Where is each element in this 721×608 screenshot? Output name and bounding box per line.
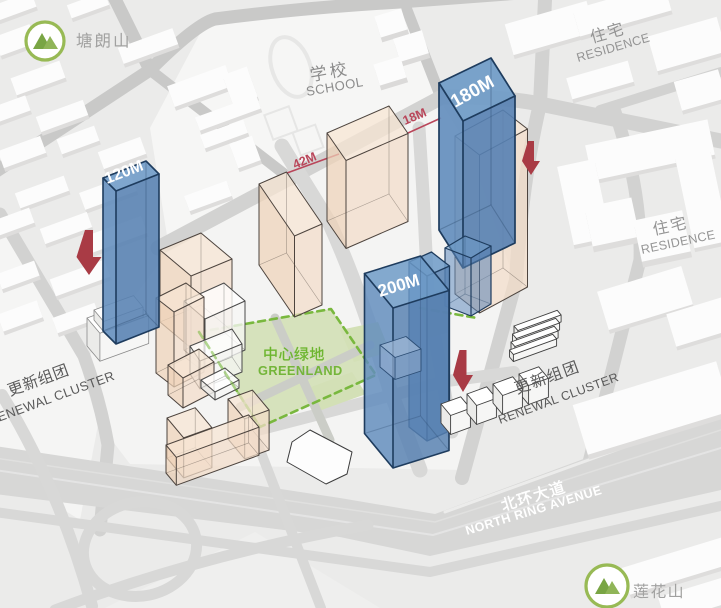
svg-text:GREENLAND: GREENLAND <box>258 363 343 378</box>
